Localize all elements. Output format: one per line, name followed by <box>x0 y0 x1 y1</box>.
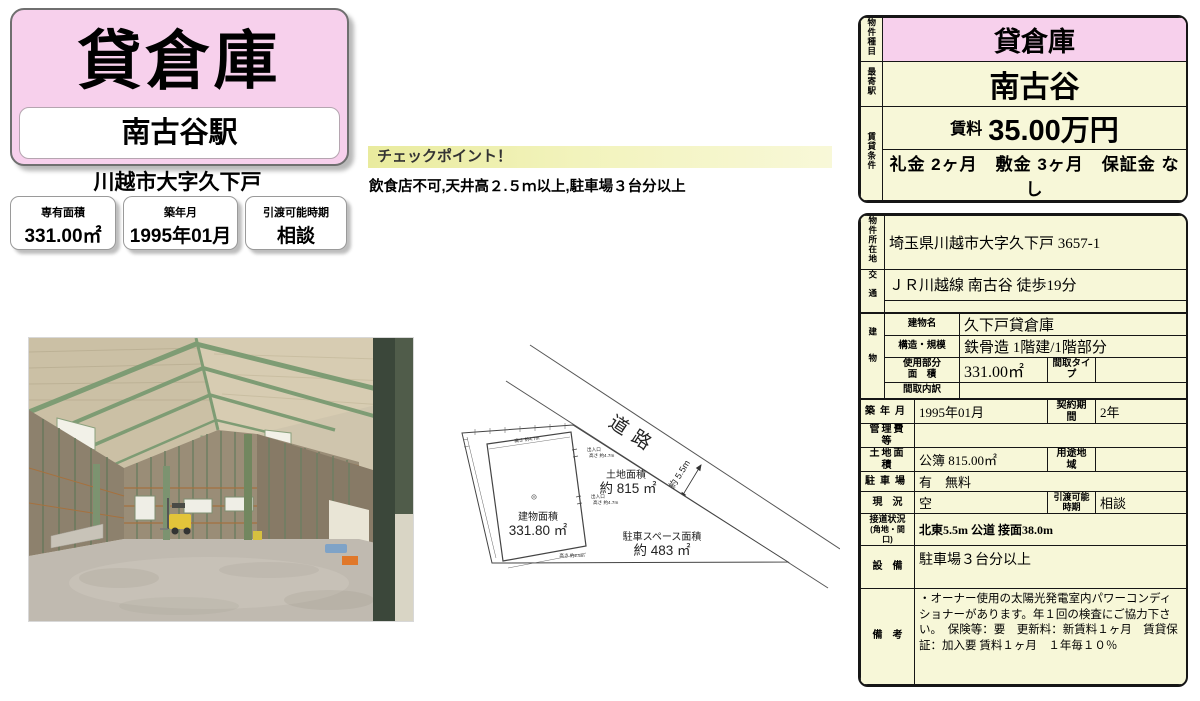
table-row: 建物 建物名 久下戸貸倉庫 <box>861 313 1187 336</box>
value-madori-detail <box>960 382 1187 399</box>
table-row: 間取内訳 <box>861 382 1187 399</box>
value-built-date: 1995年01月 <box>915 399 1048 424</box>
table-row: 交通 ＪＲ川越線 南古谷 徒歩19分 <box>861 269 1187 300</box>
flyer-page: 貸倉庫 南古谷駅 川越市大字久下戸 専有面積 331.00㎡ 築年月 1995年… <box>0 0 1200 701</box>
table-row: 備 考 ・オーナー使用の太陽光発電室内パワーコンディショナーがあります。年１回の… <box>861 588 1187 684</box>
value-transport: ＪＲ川越線 南古谷 徒歩19分 <box>885 269 1187 300</box>
table-row: 礼金 2ヶ月 敷金 3ヶ月 保証金 なし <box>861 150 1187 201</box>
warehouse-photo <box>28 337 414 622</box>
value-location: 埼玉県川越市大字久下戸 3657-1 <box>885 216 1187 270</box>
label-used-area: 使用部分 面 積 <box>885 357 960 382</box>
value-handover: 相談 <box>1096 492 1187 514</box>
building-outline <box>487 432 586 568</box>
label-building-name: 建物名 <box>885 313 960 336</box>
value-madori-type <box>1096 357 1187 382</box>
station-name: 南古谷駅 <box>19 107 340 159</box>
table-row: 使用部分 面 積 331.00㎡ 間取タイプ <box>861 357 1187 382</box>
yellow-crate <box>253 531 262 540</box>
table-row: 管理費等 <box>861 424 1187 448</box>
table-row: 構造・規模 鉄骨造 1階建/1階部分 <box>861 335 1187 357</box>
label-lease-terms: 賃貸条件 <box>861 107 883 201</box>
table-row: 賃貸条件 賃料35.00万円 <box>861 107 1187 150</box>
label-land-area: 土地面積 <box>861 448 915 472</box>
stat-card-handover: 引渡可能時期 相談 <box>245 196 347 250</box>
label-mgmt-fee: 管理費等 <box>861 424 915 448</box>
value-structure: 鉄骨造 1階建/1階部分 <box>960 335 1187 357</box>
table-row: 物件種目 貸倉庫 <box>861 18 1187 62</box>
entrance2-height: 高さ 約4.7m <box>593 499 618 506</box>
building-area-label: 建物面積 <box>518 510 558 523</box>
table-row: 設 備 駐車場３台分以上 <box>861 545 1187 588</box>
value-zoning <box>1096 448 1187 472</box>
stat-card-built: 築年月 1995年01月 <box>123 196 238 250</box>
checkpoint-text: 飲食店不可,天井高２.５ｍ以上,駐車場３台分以上 <box>369 175 686 196</box>
label-property-type: 物件種目 <box>861 18 883 62</box>
address-line: 川越市大字久下戸 <box>10 166 345 196</box>
value-parking: 有 無料 <box>915 472 1187 492</box>
stat-value: 相談 <box>246 221 346 248</box>
table-row: 最寄駅 南古谷 <box>861 62 1187 107</box>
table-row <box>861 300 1187 312</box>
rent-label: 賃料 <box>950 121 982 138</box>
stat-value: 1995年01月 <box>124 221 237 248</box>
value-mgmt-fee <box>915 424 1187 448</box>
label-structure: 構造・規模 <box>885 335 960 357</box>
table-row: 現 況 空 引渡可能 時期 相談 <box>861 492 1187 514</box>
value-property-type: 貸倉庫 <box>883 18 1187 62</box>
value-contract-term: 2年 <box>1096 399 1187 424</box>
label-parking: 駐車場 <box>861 472 915 492</box>
table-row: 築年月 1995年01月 契約期間 2年 <box>861 399 1187 424</box>
value-rent: 賃料35.00万円 <box>883 107 1187 150</box>
table-row: 土地面積 公簿 815.00㎡ 用途地域 <box>861 448 1187 472</box>
building-area-value: 331.80 ㎡ <box>509 523 568 538</box>
details-table: 物件所在地 埼玉県川越市大字久下戸 3657-1 交通 ＪＲ川越線 南古谷 徒歩… <box>858 213 1188 687</box>
entrance1-label: 出入口 <box>587 446 601 453</box>
label-notes: 備 考 <box>861 588 915 684</box>
property-type-card: 貸倉庫 南古谷駅 <box>10 8 349 166</box>
land-area-value: 約 815 ㎡ <box>599 481 657 496</box>
label-status: 現 況 <box>861 492 915 514</box>
value-notes: ・オーナー使用の太陽光発電室内パワーコンディショナーがあります。年１回の検査にご… <box>915 588 1187 684</box>
value-status: 空 <box>915 492 1048 514</box>
value-transport-2 <box>885 300 1187 312</box>
orange-equipment <box>342 556 358 565</box>
parking-area-label: 駐車スペース面積 <box>623 530 702 543</box>
eave-height-label: 高さ 約2.5m <box>559 552 584 559</box>
label-built-date: 築年月 <box>861 399 915 424</box>
value-frontage: 北東5.5m 公道 接面38.0m <box>915 513 1187 545</box>
table-row: 物件所在地 埼玉県川越市大字久下戸 3657-1 <box>861 216 1187 270</box>
concrete-floor <box>29 539 413 621</box>
parking-area-value: 約 483 ㎡ <box>633 543 691 558</box>
value-fees: 礼金 2ヶ月 敷金 3ヶ月 保証金 なし <box>883 150 1187 201</box>
label-transport: 交通 <box>861 269 885 313</box>
label-location: 物件所在地 <box>861 216 885 270</box>
label-nearest-station: 最寄駅 <box>861 62 883 107</box>
label-handover: 引渡可能 時期 <box>1048 492 1096 514</box>
stat-label: 専有面積 <box>11 204 115 220</box>
stat-card-area: 専有面積 331.00㎡ <box>10 196 116 250</box>
label-contract-term: 契約期間 <box>1048 399 1096 424</box>
land-area-label: 土地面積 <box>606 468 646 481</box>
site-plan: 道路 約 5.5m <box>430 337 840 602</box>
value-facilities: 駐車場３台分以上 <box>915 545 1187 588</box>
value-building-name: 久下戸貸倉庫 <box>960 313 1187 336</box>
table-row: 駐車場 有 無料 <box>861 472 1187 492</box>
value-land-area: 公簿 815.00㎡ <box>915 448 1048 472</box>
label-building-section: 建物 <box>861 313 885 400</box>
stat-label: 引渡可能時期 <box>246 204 346 220</box>
entrance1-height: 高さ 約4.7m <box>589 452 614 459</box>
stat-value: 331.00㎡ <box>11 221 115 248</box>
site-plan-svg: 道路 約 5.5m <box>430 337 840 602</box>
label-frontage: 接道状況 (角地・間口) <box>861 513 915 545</box>
summary-table: 物件種目 貸倉庫 最寄駅 南古谷 賃貸条件 賃料35.00万円 礼金 2ヶ月 敷… <box>858 15 1188 203</box>
value-nearest-station: 南古谷 <box>883 62 1187 107</box>
label-madori-type: 間取タイプ <box>1048 357 1096 382</box>
table-row: 接道状況 (角地・間口) 北東5.5m 公道 接面38.0m <box>861 513 1187 545</box>
checkpoint-banner: チェックポイント！ <box>368 146 832 168</box>
value-used-area: 331.00㎡ <box>960 357 1048 382</box>
label-zoning: 用途地域 <box>1048 448 1096 472</box>
warehouse-photo-svg <box>29 338 413 621</box>
page-title: 貸倉庫 <box>12 10 347 110</box>
rent-amount: 35.00万円 <box>988 115 1119 147</box>
blue-tarp <box>325 544 347 553</box>
label-facilities: 設 備 <box>861 545 915 588</box>
label-madori-detail: 間取内訳 <box>885 382 960 399</box>
stat-label: 築年月 <box>124 204 237 220</box>
